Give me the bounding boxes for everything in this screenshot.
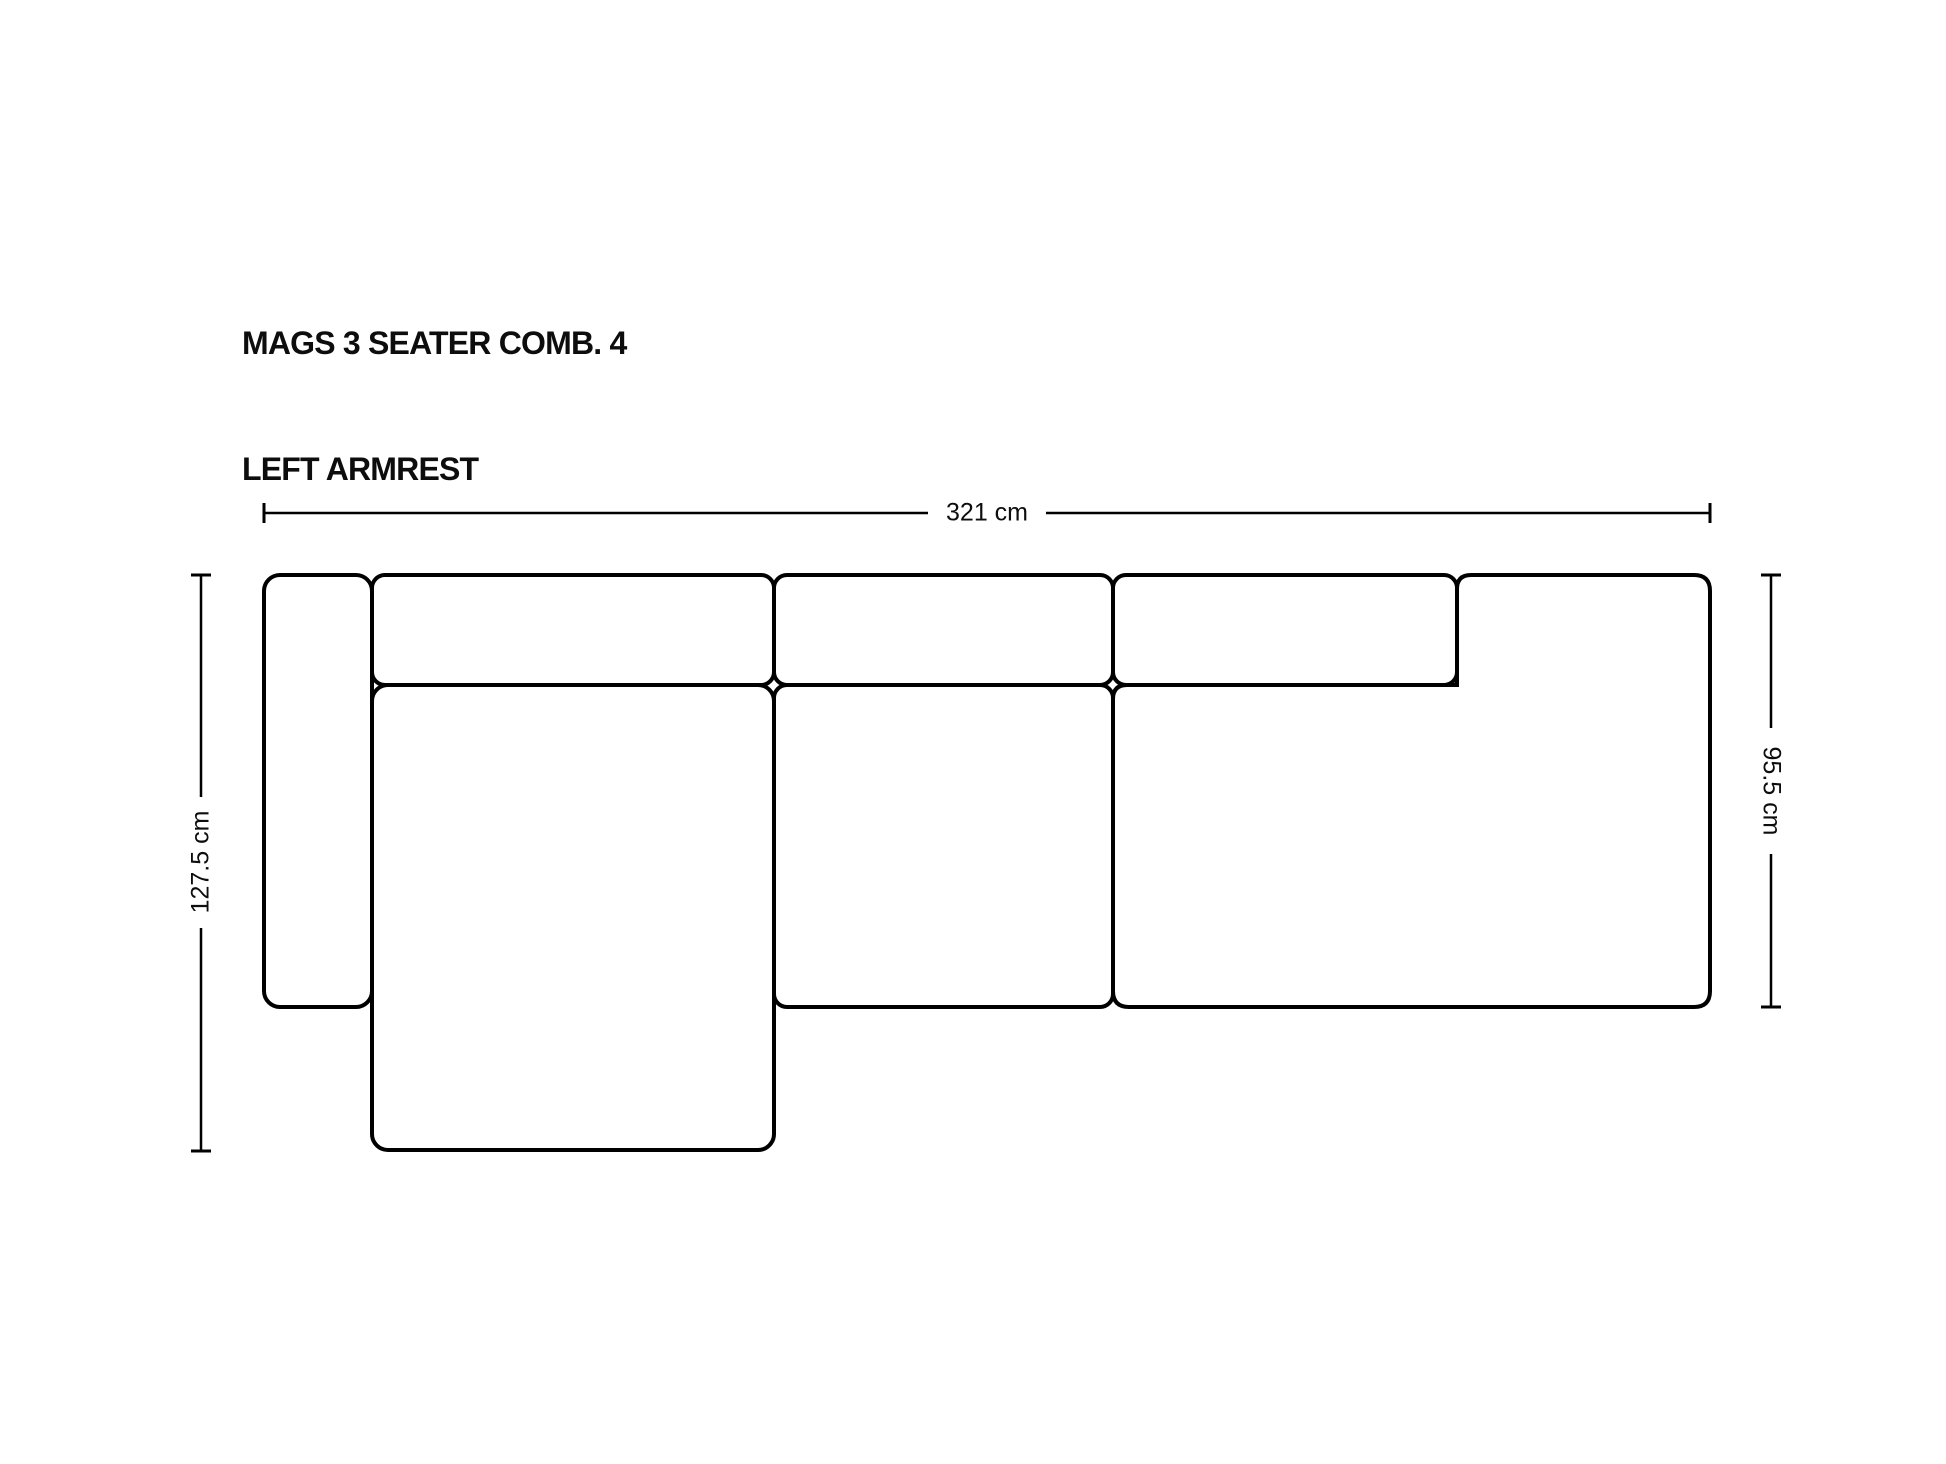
back-cushion-2-outline [774, 575, 1113, 685]
back-cushion-1-outline [372, 575, 774, 685]
middle-seat-outline [774, 685, 1113, 1007]
chaise-longue-seat-outline [372, 685, 774, 1150]
overall-width-dimension-label: 321 cm [934, 497, 1040, 530]
sofa-depth-dimension-label: 95.5 cm [1755, 735, 1788, 848]
back-cushion-3-outline [1113, 575, 1457, 685]
left-armrest-outline [264, 575, 372, 1007]
product-title-line1: MAGS 3 SEATER COMB. 4 [242, 322, 626, 364]
chaise-depth-dimension-label: 127.5 cm [185, 799, 218, 926]
technical-drawing-page: MAGS 3 SEATER COMB. 4 LEFT ARMREST 321 c… [0, 0, 1946, 1464]
sofa-outline-group [264, 575, 1710, 1150]
right-lounge-module-outline [1113, 575, 1710, 1007]
product-title: MAGS 3 SEATER COMB. 4 LEFT ARMREST [242, 238, 626, 574]
sofa-dimension-diagram [0, 0, 1946, 1464]
product-title-line2: LEFT ARMREST [242, 448, 626, 490]
